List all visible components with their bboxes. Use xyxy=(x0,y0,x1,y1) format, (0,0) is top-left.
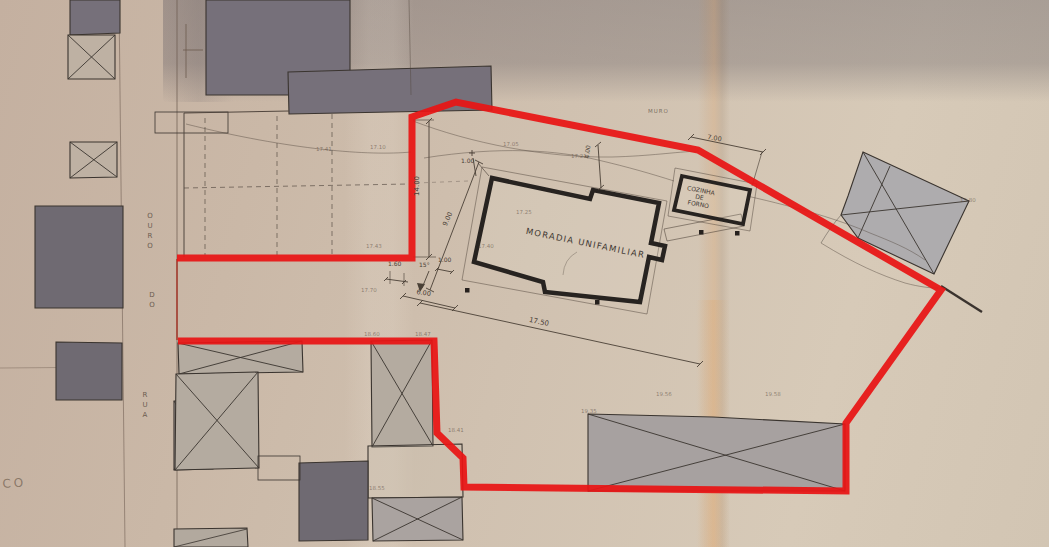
spot-elevation: 17.70 xyxy=(361,287,377,293)
spot-elevation: 17.21 xyxy=(571,153,587,159)
spot-elevation: 19.35 xyxy=(581,408,597,414)
spot-elevation: 19.56 xyxy=(656,391,672,397)
spot-elevation: 17.05 xyxy=(503,141,519,147)
spot-elevation: 19.58 xyxy=(765,391,781,397)
street-name-word-rua: RUA xyxy=(141,391,149,421)
neighbor-buildings xyxy=(35,0,969,547)
spot-elevation: 18.47 xyxy=(415,331,431,337)
spot-elevation: 18.41 xyxy=(448,427,464,433)
dim-setback: 1.60 xyxy=(388,260,401,267)
street-name-word-do: DO xyxy=(148,291,156,311)
margin-note: CO xyxy=(2,475,27,491)
spot-elevation: 17.40 xyxy=(478,243,494,249)
spot-elevation: 17.41 xyxy=(316,146,332,152)
street-name-word-ouro: OURO xyxy=(146,212,154,252)
dim-angle: 15° xyxy=(419,261,430,268)
dim-boundary-left: 14.00 xyxy=(413,176,421,196)
dim-offset-top: 1.00 xyxy=(461,157,474,164)
dim-offset-bottom: 1.00 xyxy=(438,256,451,263)
garden-wall-line xyxy=(941,286,982,312)
spot-elevation: 18.60 xyxy=(364,331,380,337)
spot-elevation: 17.10 xyxy=(370,144,386,150)
wall-note-label: MURO xyxy=(648,108,669,114)
spot-elevation: 15.80 xyxy=(960,197,976,203)
site-plan-scan: MORADIA UNIFAMILIAR COZINHA DE FORNO MUR… xyxy=(0,0,1049,547)
spot-elevation: 17.43 xyxy=(366,243,382,249)
spot-elevation: 17.25 xyxy=(516,209,532,215)
site-plan-drawing xyxy=(0,0,1049,547)
spot-elevation: 18.55 xyxy=(369,485,385,491)
